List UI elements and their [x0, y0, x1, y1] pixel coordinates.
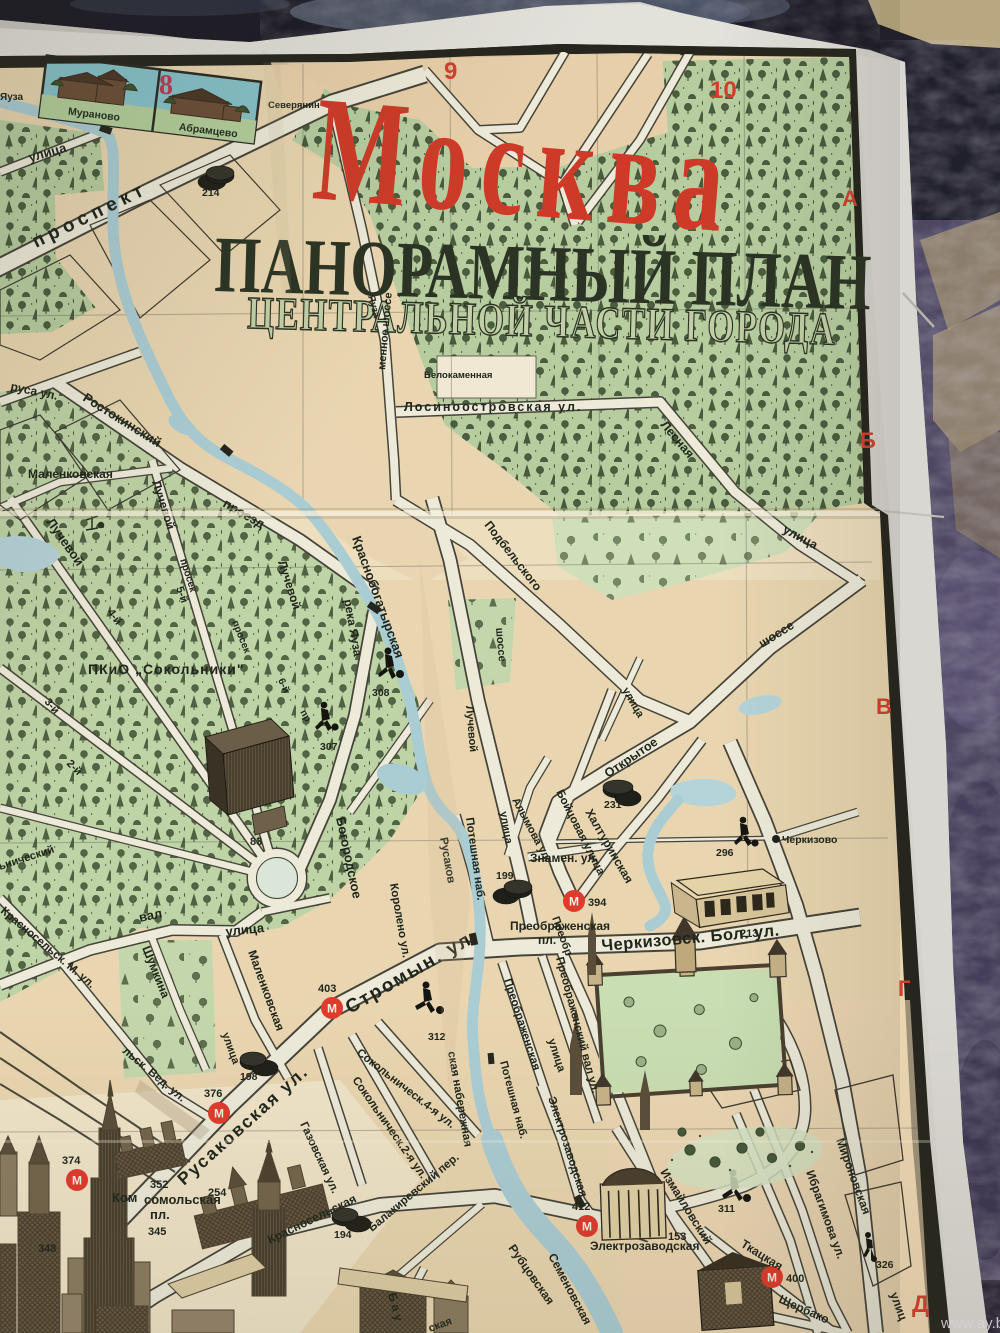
svg-text:www.ay.by: www.ay.by [940, 1315, 1000, 1332]
